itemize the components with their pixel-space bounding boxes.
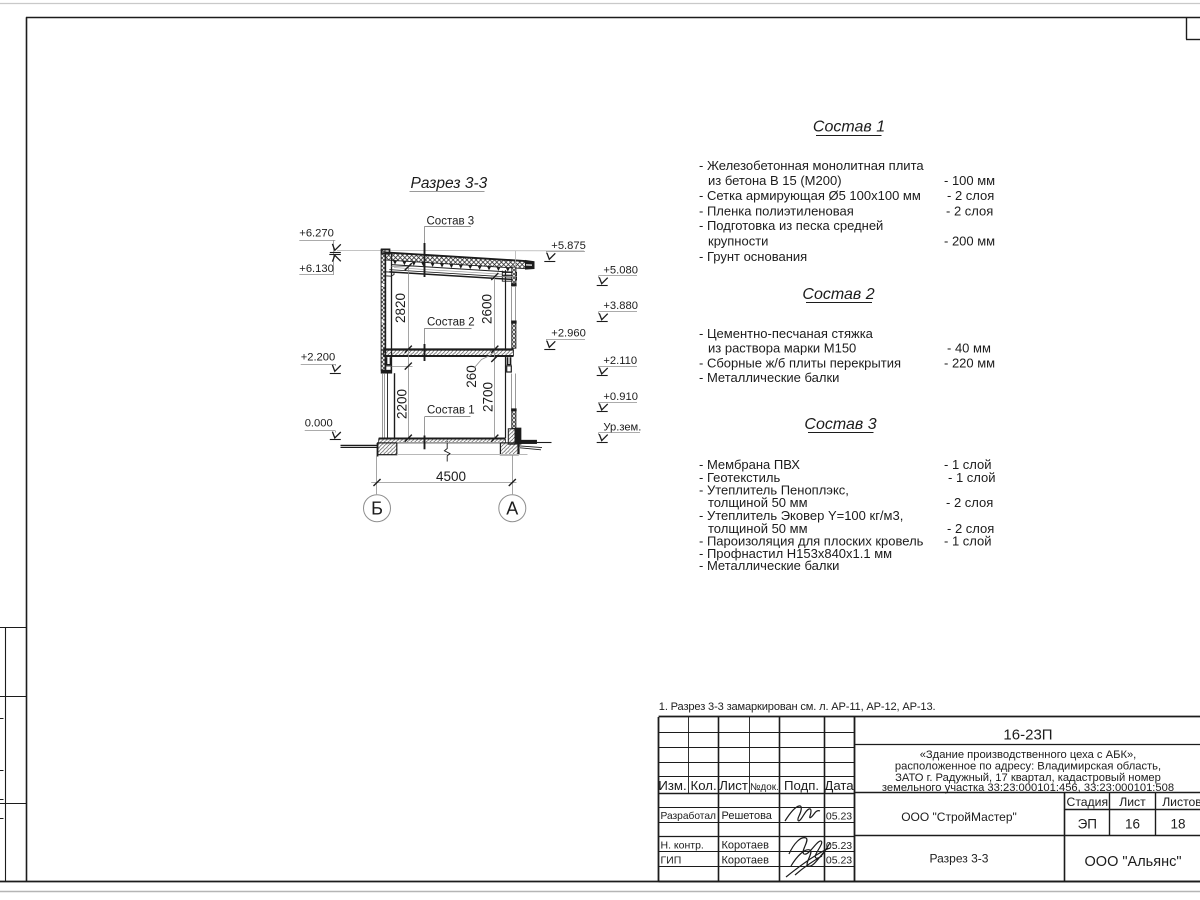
svg-text:Коротаев: Коротаев xyxy=(722,839,770,851)
svg-text:- Сборные ж/б плиты перекрытия: - Сборные ж/б плиты перекрытия xyxy=(699,355,901,370)
svg-text:«Здание производственного цеха: «Здание производственного цеха с АБК», xyxy=(920,749,1137,761)
svg-text:- Металлические балки: - Металлические балки xyxy=(699,370,839,385)
svg-text:- 40 мм: - 40 мм xyxy=(947,341,991,356)
svg-text:из бетона В 15 (М200): из бетона В 15 (М200) xyxy=(708,173,842,188)
svg-text:05.23: 05.23 xyxy=(826,855,852,867)
svg-text:- Подготовка из песка средней: - Подготовка из песка средней xyxy=(699,218,883,233)
svg-text:Состав 2: Состав 2 xyxy=(802,286,874,303)
svg-text:2200: 2200 xyxy=(394,389,409,419)
svg-text:16: 16 xyxy=(1125,816,1140,831)
svg-text:крупности: крупности xyxy=(708,234,768,249)
svg-text:05.23: 05.23 xyxy=(826,840,852,852)
svg-text:Б: Б xyxy=(371,499,383,519)
svg-text:Ур.зем.: Ур.зем. xyxy=(603,422,641,434)
svg-text:- 1 слой: - 1 слой xyxy=(944,534,992,549)
svg-text:+2.110: +2.110 xyxy=(603,355,637,367)
svg-text:№док.: №док. xyxy=(750,782,779,793)
svg-text:+0.910: +0.910 xyxy=(603,391,638,403)
svg-text:Состав 2: Состав 2 xyxy=(427,316,475,328)
svg-text:Разрез 3-3: Разрез 3-3 xyxy=(930,852,989,866)
svg-text:- Грунт основания: - Грунт основания xyxy=(699,249,807,264)
svg-text:+2.960: +2.960 xyxy=(551,328,586,340)
svg-text:Подп.: Подп. xyxy=(784,778,819,793)
svg-text:- 220 мм: - 220 мм xyxy=(944,355,995,370)
svg-text:Разработал: Разработал xyxy=(661,810,717,822)
svg-text:А: А xyxy=(506,499,518,519)
svg-text:земельного участка 33:23:00010: земельного участка 33:23:000101:456, 33:… xyxy=(882,782,1174,794)
svg-text:+5.875: +5.875 xyxy=(551,240,586,252)
svg-text:Дата: Дата xyxy=(824,778,854,793)
svg-text:2700: 2700 xyxy=(481,382,496,412)
svg-text:- 200 мм: - 200 мм xyxy=(944,234,995,249)
svg-text:+3.880: +3.880 xyxy=(603,300,638,312)
svg-text:+2.200: +2.200 xyxy=(301,352,336,364)
svg-text:- 2 слоя: - 2 слоя xyxy=(946,203,993,218)
svg-text:- Цементно-песчаная стяжка: - Цементно-песчаная стяжка xyxy=(699,326,874,341)
svg-text:ЭП: ЭП xyxy=(1078,816,1097,831)
svg-text:- Пленка полиэтиленовая: - Пленка полиэтиленовая xyxy=(699,203,854,218)
svg-text:- 2 слоя: - 2 слоя xyxy=(947,188,994,203)
svg-text:Состав 1: Состав 1 xyxy=(813,119,885,136)
svg-text:из раствора марки М150: из раствора марки М150 xyxy=(708,341,856,356)
svg-text:Состав 3: Состав 3 xyxy=(804,416,876,433)
svg-text:2600: 2600 xyxy=(480,294,495,324)
svg-text:Решетова: Решетова xyxy=(722,810,773,822)
svg-text:1. Разрез 3-3 замаркирован см.: 1. Разрез 3-3 замаркирован см. л. АР-11,… xyxy=(659,701,936,713)
svg-text:Листов: Листов xyxy=(1162,795,1200,809)
svg-text:2820: 2820 xyxy=(393,293,408,323)
svg-text:260: 260 xyxy=(464,365,479,388)
svg-text:- Металлические балки: - Металлические балки xyxy=(699,558,839,573)
svg-text:4500: 4500 xyxy=(436,469,466,484)
svg-text:- Сетка армирующая Ø5 100х100: - Сетка армирующая Ø5 100х100 мм xyxy=(699,188,921,203)
svg-text:ООО "СтройМастер": ООО "СтройМастер" xyxy=(901,810,1017,824)
svg-text:Состав 1: Состав 1 xyxy=(427,405,475,417)
svg-text:+5.080: +5.080 xyxy=(603,264,638,276)
svg-text:16-23П: 16-23П xyxy=(1003,727,1052,744)
svg-text:- 2 слоя: - 2 слоя xyxy=(946,495,993,510)
svg-text:Кол.: Кол. xyxy=(691,778,717,793)
svg-text:Н. контр.: Н. контр. xyxy=(661,839,704,851)
svg-text:18: 18 xyxy=(1170,816,1185,831)
svg-text:Лист: Лист xyxy=(719,778,748,793)
svg-text:расположенное по адресу: Влади: расположенное по адресу: Владимирская об… xyxy=(895,761,1161,773)
svg-text:+6.130: +6.130 xyxy=(299,263,334,275)
svg-text:- Железобетонная монолитная п: - Железобетонная монолитная плита xyxy=(699,158,924,173)
svg-text:- 100 мм: - 100 мм xyxy=(944,173,995,188)
svg-text:- 1 слой: - 1 слой xyxy=(948,470,996,485)
svg-text:05.23: 05.23 xyxy=(826,810,852,822)
svg-text:Стадия: Стадия xyxy=(1067,795,1109,809)
svg-text:Разрез 3-3: Разрез 3-3 xyxy=(411,175,488,192)
svg-text:Коротаев: Коротаев xyxy=(722,854,770,866)
svg-text:ООО "Альянс": ООО "Альянс" xyxy=(1085,854,1182,870)
svg-text:0.000: 0.000 xyxy=(305,418,333,430)
svg-text:Состав 3: Состав 3 xyxy=(427,215,475,227)
svg-text:Лист: Лист xyxy=(1119,795,1146,809)
svg-text:ГИП: ГИП xyxy=(661,854,682,866)
svg-text:+6.270: +6.270 xyxy=(299,227,334,239)
svg-text:Изм.: Изм. xyxy=(658,778,686,793)
